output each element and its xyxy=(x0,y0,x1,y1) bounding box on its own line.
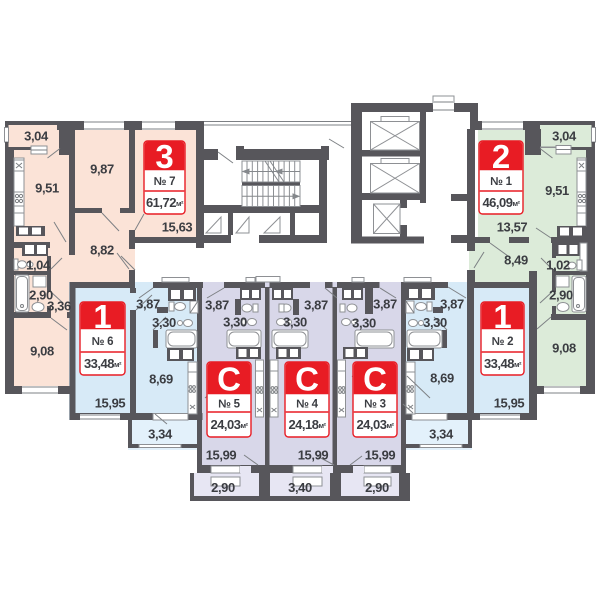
svg-text:9,51: 9,51 xyxy=(545,183,569,198)
svg-text:3,34: 3,34 xyxy=(148,427,173,442)
svg-text:№ 4: № 4 xyxy=(296,399,318,411)
svg-text:8,49: 8,49 xyxy=(504,253,528,268)
svg-text:3,30: 3,30 xyxy=(283,315,307,330)
svg-text:2,90: 2,90 xyxy=(365,480,389,495)
svg-text:3,34: 3,34 xyxy=(429,427,454,442)
svg-text:3,87: 3,87 xyxy=(205,298,229,313)
svg-text:15,95: 15,95 xyxy=(494,396,525,411)
svg-text:9,08: 9,08 xyxy=(552,341,576,356)
svg-text:15,63: 15,63 xyxy=(162,220,193,235)
svg-text:9,51: 9,51 xyxy=(35,181,59,196)
svg-text:2,90: 2,90 xyxy=(549,288,573,303)
svg-text:№ 1: № 1 xyxy=(490,176,512,188)
svg-text:3,04: 3,04 xyxy=(552,129,577,144)
svg-text:1: 1 xyxy=(493,298,511,335)
svg-text:1: 1 xyxy=(93,298,111,335)
svg-text:№ 2: № 2 xyxy=(492,336,514,348)
svg-text:8,69: 8,69 xyxy=(149,372,173,387)
svg-text:3,87: 3,87 xyxy=(373,297,397,312)
svg-text:3,40: 3,40 xyxy=(288,480,312,495)
svg-text:15,99: 15,99 xyxy=(298,448,329,463)
svg-text:9,08: 9,08 xyxy=(30,344,54,359)
svg-text:15,95: 15,95 xyxy=(95,396,126,411)
svg-text:8,82: 8,82 xyxy=(90,243,114,258)
svg-text:3,30: 3,30 xyxy=(152,315,176,330)
svg-text:3,30: 3,30 xyxy=(352,316,376,331)
svg-text:2: 2 xyxy=(492,138,510,175)
svg-text:3,36: 3,36 xyxy=(47,299,71,314)
svg-text:15,99: 15,99 xyxy=(365,448,396,463)
svg-text:№ 7: № 7 xyxy=(154,176,176,188)
svg-text:1,02: 1,02 xyxy=(546,258,570,273)
svg-text:3,87: 3,87 xyxy=(440,297,464,312)
svg-text:№ 5: № 5 xyxy=(218,399,240,411)
svg-text:15,99: 15,99 xyxy=(206,448,237,463)
svg-text:1,04: 1,04 xyxy=(26,258,51,273)
svg-text:3,87: 3,87 xyxy=(304,298,328,313)
svg-text:9,87: 9,87 xyxy=(90,162,114,177)
svg-text:2,90: 2,90 xyxy=(211,480,235,495)
svg-text:№ 6: № 6 xyxy=(92,336,114,348)
svg-text:С: С xyxy=(295,361,319,398)
svg-text:С: С xyxy=(217,361,241,398)
svg-text:13,57: 13,57 xyxy=(497,220,528,235)
svg-text:3,30: 3,30 xyxy=(423,315,447,330)
svg-text:3,04: 3,04 xyxy=(24,129,49,144)
svg-text:3: 3 xyxy=(155,138,173,175)
svg-text:№ 3: № 3 xyxy=(364,399,386,411)
svg-text:3,87: 3,87 xyxy=(136,297,160,312)
svg-text:С: С xyxy=(363,361,387,398)
svg-text:3,30: 3,30 xyxy=(223,315,247,330)
svg-text:8,69: 8,69 xyxy=(430,371,454,386)
